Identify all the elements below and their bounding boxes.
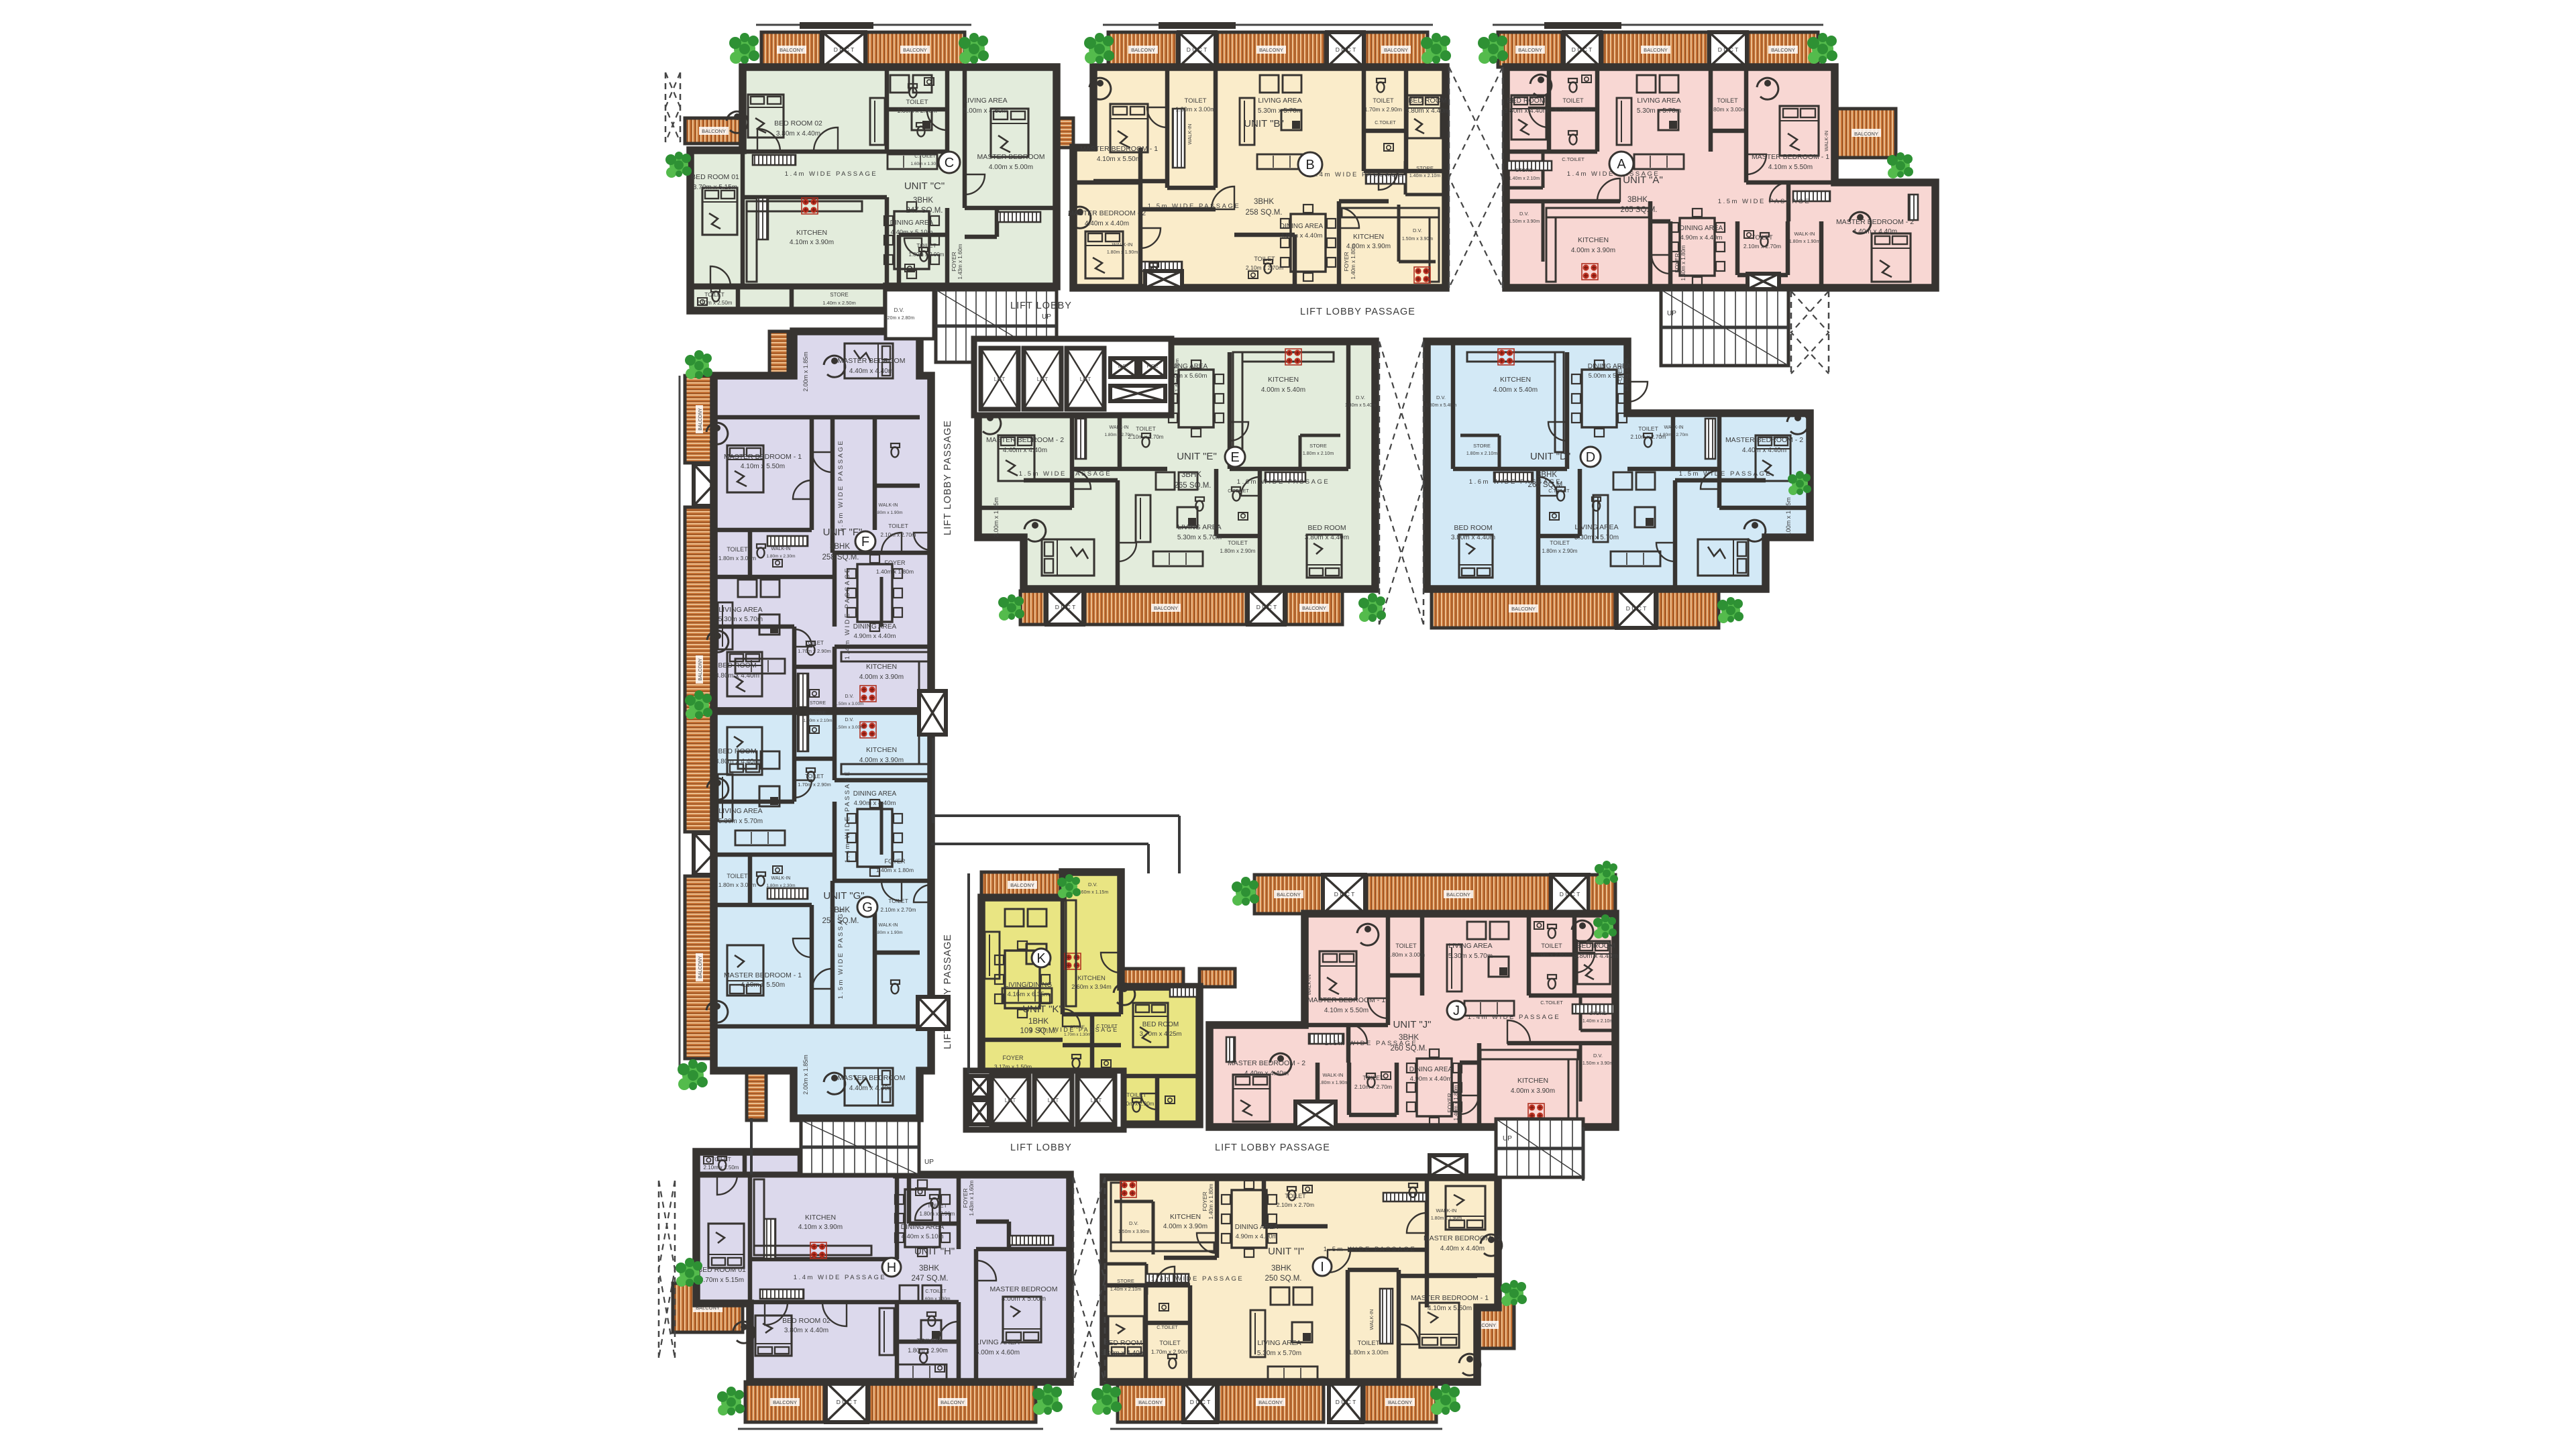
- svg-text:MASTER BEDROOM - 1: MASTER BEDROOM - 1: [724, 971, 802, 979]
- svg-text:2.10m x 2.70m: 2.10m x 2.70m: [1631, 434, 1666, 440]
- svg-text:4.40m x 5.10m: 4.40m x 5.10m: [891, 229, 933, 236]
- svg-text:MASTER BEDROOM - 2: MASTER BEDROOM - 2: [1836, 218, 1914, 226]
- svg-text:1.40m x 2.10m: 1.40m x 2.10m: [1582, 1019, 1613, 1024]
- svg-text:C.TOILET: C.TOILET: [1540, 1000, 1563, 1006]
- svg-text:5.30m x 5.70m: 5.30m x 5.70m: [718, 616, 763, 623]
- svg-text:1.40m x 1.80m: 1.40m x 1.80m: [876, 568, 914, 575]
- svg-text:TOILET: TOILET: [711, 1156, 731, 1163]
- svg-text:2.00m x 1.85m: 2.00m x 1.85m: [993, 497, 1000, 537]
- svg-text:1.40m x 1.80m: 1.40m x 1.80m: [876, 867, 914, 873]
- svg-text:3BHK: 3BHK: [1399, 1034, 1419, 1042]
- svg-text:2.10m x 2.70m: 2.10m x 2.70m: [1246, 264, 1283, 271]
- svg-text:1.5m WIDE PASSAGE: 1.5m WIDE PASSAGE: [837, 439, 845, 532]
- svg-text:UNIT "J": UNIT "J": [1393, 1019, 1431, 1030]
- svg-text:BALCONY: BALCONY: [1511, 606, 1536, 612]
- svg-text:WALK-IN: WALK-IN: [1823, 131, 1829, 152]
- svg-text:1.4m WIDE PASSAGE: 1.4m WIDE PASSAGE: [785, 170, 877, 178]
- svg-text:1.80m x 3.00m: 1.80m x 3.00m: [1387, 951, 1425, 958]
- svg-text:D U C T: D U C T: [1336, 1399, 1356, 1405]
- svg-text:1.80m x 5.40m: 1.80m x 5.40m: [1426, 403, 1456, 408]
- svg-text:TOILET: TOILET: [805, 640, 824, 646]
- svg-text:1.50m x 3.90m: 1.50m x 3.90m: [1118, 1230, 1149, 1234]
- svg-text:2.60m x 1.15m: 2.60m x 1.15m: [1077, 890, 1108, 895]
- svg-text:BALCONY: BALCONY: [702, 128, 726, 134]
- svg-text:E: E: [1230, 450, 1239, 465]
- svg-text:1.20m x 2.80m: 1.20m x 2.80m: [883, 316, 914, 321]
- svg-text:D U C T: D U C T: [1560, 891, 1580, 898]
- svg-text:BALCONY: BALCONY: [1010, 882, 1034, 888]
- svg-text:1.80m x 2.90m: 1.80m x 2.90m: [1542, 548, 1578, 554]
- svg-text:D.V.: D.V.: [1129, 1220, 1138, 1226]
- svg-text:1.80m x 5.40m: 1.80m x 5.40m: [1345, 403, 1376, 408]
- svg-text:1.70m x 2.90m: 1.70m x 2.90m: [1151, 1348, 1189, 1355]
- svg-text:STORE: STORE: [830, 292, 848, 298]
- svg-text:D U C T: D U C T: [1572, 46, 1593, 53]
- svg-text:4.90m x 4.40m: 4.90m x 4.40m: [854, 633, 896, 640]
- svg-text:FIRE: FIRE: [1146, 363, 1158, 369]
- svg-text:1.70m x 2.90m: 1.70m x 2.90m: [1364, 106, 1402, 113]
- svg-text:1.80m x 2.10m: 1.80m x 2.10m: [1303, 451, 1334, 456]
- svg-text:C.TOILET: C.TOILET: [1562, 156, 1585, 162]
- svg-text:1.70m x 2.90m: 1.70m x 2.90m: [798, 782, 831, 788]
- svg-text:1.80m x 2.90m: 1.80m x 2.90m: [920, 1211, 955, 1217]
- svg-text:FOYER: FOYER: [1617, 366, 1623, 384]
- svg-text:MASTER BEDROOM - 2: MASTER BEDROOM - 2: [1068, 209, 1146, 217]
- svg-text:BED ROOM 02: BED ROOM 02: [774, 119, 822, 127]
- svg-text:4.10m x 5.50m: 4.10m x 5.50m: [1428, 1305, 1472, 1312]
- svg-text:WALK-IN: WALK-IN: [879, 503, 898, 508]
- svg-text:FOYER: FOYER: [1002, 1055, 1024, 1061]
- svg-text:MASTER BEDROOM: MASTER BEDROOM: [977, 153, 1045, 161]
- svg-text:2.10m x 2.70m: 2.10m x 2.70m: [1128, 434, 1164, 440]
- svg-text:260 SQ.M.: 260 SQ.M.: [1391, 1044, 1428, 1053]
- svg-text:4.40m x 5.10m: 4.40m x 5.10m: [902, 1233, 944, 1240]
- svg-text:4.10m x 5.50m: 4.10m x 5.50m: [741, 981, 785, 989]
- svg-text:1.80m x 1.90m: 1.80m x 1.90m: [1107, 250, 1138, 255]
- svg-text:STORE: STORE: [1117, 1278, 1134, 1284]
- svg-text:4.00m x 5.00m: 4.00m x 5.00m: [1002, 1295, 1046, 1303]
- svg-text:1.80m x 2.30m: 1.80m x 2.30m: [767, 883, 796, 888]
- svg-text:MASTER BEDROOM - 1: MASTER BEDROOM - 1: [1307, 996, 1385, 1004]
- svg-text:D.V.: D.V.: [1436, 394, 1446, 400]
- svg-text:4.00m x 3.90m: 4.00m x 3.90m: [1163, 1223, 1207, 1230]
- svg-text:TOILET: TOILET: [906, 99, 928, 106]
- svg-text:2.00m x 1.85m: 2.00m x 1.85m: [802, 1055, 809, 1095]
- svg-text:LIFT: LIFT: [1037, 376, 1049, 382]
- svg-text:BED ROOM: BED ROOM: [1142, 1021, 1179, 1028]
- svg-text:BALCONY: BALCONY: [1277, 892, 1301, 898]
- svg-text:J: J: [1453, 1004, 1460, 1018]
- svg-text:TOILET: TOILET: [1550, 539, 1570, 546]
- svg-text:LIFT: LIFT: [1091, 1097, 1102, 1104]
- svg-text:BED ROOM: BED ROOM: [1507, 97, 1545, 105]
- svg-text:TOILET: TOILET: [727, 546, 748, 553]
- svg-text:D U C T: D U C T: [1256, 604, 1277, 610]
- svg-text:TOILET: TOILET: [888, 898, 908, 904]
- svg-text:1.4m WIDE PASSAGE: 1.4m WIDE PASSAGE: [794, 1274, 886, 1281]
- svg-text:4.90m x 4.40m: 4.90m x 4.40m: [1680, 234, 1723, 241]
- svg-text:TOILET: TOILET: [805, 773, 824, 780]
- svg-text:3.80m x 4.40m: 3.80m x 4.40m: [715, 758, 759, 765]
- svg-text:C: C: [945, 156, 954, 170]
- svg-text:1.40m x 1.80m: 1.40m x 1.80m: [1208, 1183, 1214, 1219]
- svg-text:FOYER: FOYER: [884, 559, 906, 566]
- svg-text:4.40m x 4.40m: 4.40m x 4.40m: [1244, 1070, 1289, 1077]
- svg-text:BED ROOM 02: BED ROOM 02: [782, 1317, 830, 1325]
- svg-text:UP: UP: [1667, 310, 1676, 317]
- svg-text:2.00m x 1.85m: 2.00m x 1.85m: [1785, 497, 1792, 537]
- svg-text:MASTER BEDROOM - 1: MASTER BEDROOM - 1: [724, 453, 802, 461]
- svg-text:D.V.: D.V.: [845, 718, 854, 722]
- svg-text:4.90m x 4.40m: 4.90m x 4.40m: [1281, 232, 1323, 239]
- svg-text:1.80m x 3.00m: 1.80m x 3.00m: [1348, 1349, 1389, 1356]
- svg-text:TOILET: TOILET: [916, 1338, 938, 1345]
- svg-text:4.00m x 5.40m: 4.00m x 5.40m: [1261, 386, 1305, 394]
- svg-text:DINING AREA: DINING AREA: [901, 1224, 945, 1231]
- svg-text:D.V.: D.V.: [1088, 881, 1097, 888]
- svg-text:3BHK: 3BHK: [919, 1265, 939, 1273]
- svg-text:4.00m x 3.90m: 4.00m x 3.90m: [1571, 247, 1615, 254]
- svg-text:3.70m x 5.15m: 3.70m x 5.15m: [700, 1277, 744, 1284]
- svg-text:3BHK: 3BHK: [913, 197, 933, 205]
- svg-text:260 SQ.M.: 260 SQ.M.: [1528, 481, 1565, 489]
- svg-text:DINING AREA: DINING AREA: [1280, 223, 1324, 230]
- svg-text:BED ROOM 01: BED ROOM 01: [691, 173, 739, 181]
- svg-text:MASTER BEDROOM: MASTER BEDROOM: [838, 1074, 906, 1082]
- svg-text:4.00m x 5.40m: 4.00m x 5.40m: [1493, 386, 1538, 394]
- svg-text:3.80m x 4.40m: 3.80m x 4.40m: [776, 130, 820, 138]
- svg-text:1.50m x 3.90m: 1.50m x 3.90m: [1509, 219, 1540, 224]
- svg-text:2.10m x 2.70m: 2.10m x 2.70m: [881, 532, 916, 538]
- svg-text:STORE: STORE: [1589, 1010, 1607, 1016]
- svg-text:4.10m x 5.50m: 4.10m x 5.50m: [741, 463, 785, 470]
- svg-text:TOILET: TOILET: [1752, 234, 1773, 241]
- svg-text:4.40m x 4.40m: 4.40m x 4.40m: [1853, 228, 1897, 235]
- svg-text:4.10m x 5.50m: 4.10m x 5.50m: [1324, 1007, 1368, 1014]
- svg-text:5.30m x 5.70m: 5.30m x 5.70m: [1448, 953, 1493, 960]
- svg-text:TOILET: TOILET: [704, 291, 724, 298]
- svg-text:FOYER: FOYER: [951, 252, 957, 271]
- svg-text:STORE: STORE: [1473, 443, 1491, 449]
- svg-text:DINING AREA: DINING AREA: [1680, 225, 1723, 232]
- svg-text:BALCONY: BALCONY: [903, 47, 927, 53]
- svg-text:1.40m x 1.80m: 1.40m x 1.80m: [1453, 1085, 1459, 1120]
- svg-text:F: F: [861, 535, 869, 549]
- svg-text:E.D.: E.D.: [1118, 363, 1128, 369]
- svg-text:TOILET: TOILET: [1362, 1075, 1384, 1081]
- svg-text:1.80m x 2.90m: 1.80m x 2.90m: [897, 107, 937, 114]
- svg-text:BALCONY: BALCONY: [1154, 605, 1178, 611]
- svg-text:STORE: STORE: [1416, 165, 1434, 171]
- svg-text:BED ROOM: BED ROOM: [718, 661, 756, 669]
- svg-text:D U C T: D U C T: [1336, 46, 1356, 53]
- svg-text:BALCONY: BALCONY: [1771, 47, 1795, 53]
- svg-text:BALCONY: BALCONY: [1138, 1399, 1163, 1405]
- svg-text:1.4m WIDE PASSAGE: 1.4m WIDE PASSAGE: [844, 770, 851, 863]
- svg-text:BALCONY: BALCONY: [698, 658, 703, 681]
- svg-text:1.40m x 1.80m: 1.40m x 1.80m: [1680, 245, 1686, 280]
- svg-text:WALK-IN: WALK-IN: [1794, 231, 1815, 237]
- svg-text:WALK-IN: WALK-IN: [1436, 1207, 1457, 1214]
- svg-text:BED ROOM 01: BED ROOM 01: [698, 1266, 746, 1274]
- svg-text:3BHK: 3BHK: [1537, 471, 1557, 479]
- svg-text:D U C T: D U C T: [1626, 605, 1647, 612]
- svg-text:4.00m x 3.90m: 4.00m x 3.90m: [1511, 1087, 1555, 1095]
- svg-text:3.80m x 4.40m: 3.80m x 4.40m: [1405, 107, 1450, 115]
- svg-text:4.10m x 3.90m: 4.10m x 3.90m: [790, 239, 834, 246]
- svg-text:1.4m WIDE PASSAGE: 1.4m WIDE PASSAGE: [1311, 171, 1403, 178]
- svg-text:1.50m x 3.00m: 1.50m x 3.00m: [835, 725, 864, 730]
- svg-text:G: G: [862, 900, 873, 915]
- svg-text:C.TOILET: C.TOILET: [1096, 1024, 1118, 1029]
- svg-text:3.80m x 4.40m: 3.80m x 4.40m: [1305, 534, 1349, 541]
- svg-text:STORE: STORE: [1070, 1025, 1085, 1030]
- svg-text:LIFT LOBBY PASSAGE: LIFT LOBBY PASSAGE: [1300, 307, 1415, 317]
- svg-text:LIFT: LIFT: [1080, 376, 1091, 382]
- svg-text:KITCHEN: KITCHEN: [796, 229, 827, 237]
- svg-text:1.50m x 3.90m: 1.50m x 3.90m: [1582, 1061, 1613, 1066]
- svg-text:BED ROOM: BED ROOM: [1576, 942, 1615, 950]
- svg-text:1.40m x 2.10m: 1.40m x 2.10m: [804, 718, 833, 723]
- svg-text:LIVING AREA: LIVING AREA: [718, 807, 762, 815]
- svg-text:3.80m x 4.40m: 3.80m x 4.40m: [1504, 107, 1548, 115]
- svg-text:MASTER BEDROOM - 2: MASTER BEDROOM - 2: [1424, 1234, 1501, 1242]
- svg-text:C.TOILET: C.TOILET: [914, 154, 936, 159]
- svg-text:1.80m x 2.90m: 1.80m x 2.90m: [909, 252, 945, 258]
- svg-text:1.80m x 2.30m: 1.80m x 2.30m: [767, 554, 796, 559]
- svg-text:KITCHEN: KITCHEN: [1517, 1077, 1548, 1085]
- svg-text:4.40m x 4.40m: 4.40m x 4.40m: [849, 1085, 894, 1092]
- svg-text:LIFT: LIFT: [994, 376, 1006, 382]
- svg-text:BED ROOM: BED ROOM: [718, 747, 756, 755]
- svg-text:1.6m WIDE PASSAGE: 1.6m WIDE PASSAGE: [1237, 478, 1330, 486]
- svg-text:BED ROOM: BED ROOM: [1408, 97, 1446, 105]
- svg-text:LIFT LOBBY PASSAGE: LIFT LOBBY PASSAGE: [943, 934, 953, 1049]
- svg-text:1.80m x 3.00m: 1.80m x 3.00m: [718, 555, 756, 561]
- svg-text:KITCHEN: KITCHEN: [866, 746, 897, 754]
- svg-text:UNIT "G": UNIT "G": [823, 890, 864, 902]
- svg-text:1.40m x 1.80m: 1.40m x 1.80m: [1350, 244, 1356, 279]
- svg-text:D U C T: D U C T: [837, 1399, 857, 1405]
- svg-text:UP: UP: [924, 1159, 934, 1166]
- svg-text:1.40m x 2.50m: 1.40m x 2.50m: [822, 300, 856, 306]
- svg-text:DINING AREA: DINING AREA: [1235, 1224, 1279, 1231]
- svg-text:UNIT "A": UNIT "A": [1623, 174, 1663, 186]
- svg-text:TOILET: TOILET: [1126, 1091, 1146, 1098]
- svg-text:1.43m x 1.60m: 1.43m x 1.60m: [969, 1180, 975, 1216]
- svg-text:WALK-IN: WALK-IN: [771, 547, 791, 551]
- svg-text:1.80m x 1.90m: 1.80m x 1.90m: [1789, 239, 1820, 244]
- svg-text:LIVING AREA: LIVING AREA: [975, 1338, 1019, 1346]
- svg-text:258 SQ.M.: 258 SQ.M.: [822, 553, 859, 561]
- svg-text:TOILET: TOILET: [1357, 1340, 1379, 1347]
- svg-text:4.10m x 5.50m: 4.10m x 5.50m: [1768, 164, 1813, 171]
- svg-text:STORE: STORE: [1309, 443, 1327, 449]
- svg-text:BALCONY: BALCONY: [773, 1399, 797, 1405]
- svg-text:2.10m x 2.70m: 2.10m x 2.70m: [1743, 243, 1781, 250]
- svg-text:BALCONY: BALCONY: [941, 1399, 965, 1405]
- svg-text:BALCONY: BALCONY: [1384, 47, 1408, 53]
- svg-text:MASTER BEDROOM - 1: MASTER BEDROOM - 1: [1752, 153, 1829, 161]
- svg-text:TOILET: TOILET: [1184, 97, 1206, 105]
- svg-text:1.70m x 2.90m: 1.70m x 2.90m: [1533, 951, 1570, 958]
- svg-text:WALK-IN: WALK-IN: [1187, 124, 1193, 145]
- svg-text:1.43m x 1.60m: 1.43m x 1.60m: [957, 244, 963, 279]
- svg-text:3BHK: 3BHK: [1627, 196, 1648, 204]
- svg-text:4.10m x 3.90m: 4.10m x 3.90m: [798, 1224, 843, 1231]
- svg-text:1.40m x 2.10m: 1.40m x 2.10m: [1409, 174, 1440, 178]
- svg-text:FOYER: FOYER: [1201, 1191, 1208, 1211]
- svg-text:LIVING AREA: LIVING AREA: [718, 606, 762, 614]
- svg-text:BALCONY: BALCONY: [1131, 47, 1155, 53]
- svg-text:UNIT "D": UNIT "D": [1530, 451, 1570, 462]
- svg-text:TOILET: TOILET: [1373, 97, 1394, 104]
- svg-text:4.40m x 4.40m: 4.40m x 4.40m: [1003, 447, 1047, 454]
- svg-text:FOYER: FOYER: [1343, 252, 1350, 271]
- svg-text:H: H: [887, 1260, 896, 1275]
- svg-text:DINING AREA: DINING AREA: [1409, 1066, 1453, 1073]
- svg-text:1.80m x 3.00m: 1.80m x 3.00m: [718, 881, 756, 888]
- svg-text:1.40m x 2.10m: 1.40m x 2.10m: [1509, 176, 1540, 181]
- svg-text:1.40m x 1.80m: 1.40m x 1.80m: [1623, 358, 1629, 392]
- svg-text:KITCHEN: KITCHEN: [805, 1214, 836, 1222]
- svg-text:1.40m x 1.80m: 1.40m x 1.80m: [1174, 358, 1180, 392]
- svg-text:1.50m x 3.90m: 1.50m x 3.90m: [1402, 237, 1433, 241]
- svg-text:KITCHEN: KITCHEN: [1268, 376, 1299, 384]
- svg-text:3BHK: 3BHK: [1254, 198, 1274, 206]
- svg-text:265 SQ.M.: 265 SQ.M.: [1621, 206, 1658, 214]
- svg-text:1BHK: 1BHK: [1028, 1018, 1049, 1026]
- svg-text:FOYER: FOYER: [962, 1188, 969, 1207]
- svg-text:5.00m x 4.60m: 5.00m x 4.60m: [963, 107, 1008, 115]
- svg-text:3BHK: 3BHK: [830, 543, 850, 551]
- svg-text:3.70m x 5.15m: 3.70m x 5.15m: [693, 184, 737, 191]
- svg-text:1.80m x 3.00m: 1.80m x 3.00m: [1175, 106, 1216, 113]
- svg-text:MASTER BEDROOM - 1: MASTER BEDROOM - 1: [1411, 1294, 1489, 1302]
- svg-text:TOILET: TOILET: [927, 1202, 947, 1209]
- svg-text:TOILET: TOILET: [1395, 943, 1417, 949]
- svg-text:109 SQ.M.: 109 SQ.M.: [1020, 1027, 1057, 1035]
- svg-text:5.30m x 5.70m: 5.30m x 5.70m: [1637, 107, 1681, 115]
- svg-text:D U C T: D U C T: [1190, 1399, 1211, 1405]
- svg-text:1.5m WIDE PASSAGE: 1.5m WIDE PASSAGE: [1679, 470, 1772, 478]
- svg-text:WALK-IN: WALK-IN: [1664, 425, 1684, 430]
- svg-text:TOILET: TOILET: [1254, 256, 1275, 262]
- svg-text:LIFT LOBBY PASSAGE: LIFT LOBBY PASSAGE: [943, 420, 953, 535]
- svg-text:2.00m x 1.85m: 2.00m x 1.85m: [802, 352, 809, 392]
- svg-text:1.50m x 3.00m: 1.50m x 3.00m: [835, 702, 864, 706]
- svg-text:265 SQ.M.: 265 SQ.M.: [1175, 482, 1212, 490]
- svg-text:1.80m x 2.10m: 1.80m x 2.10m: [1466, 451, 1497, 456]
- svg-text:WALK-IN: WALK-IN: [1110, 425, 1129, 430]
- svg-text:B: B: [1305, 158, 1314, 172]
- svg-text:STORE: STORE: [810, 701, 826, 706]
- svg-text:4.00m x 3.90m: 4.00m x 3.90m: [859, 674, 904, 681]
- svg-text:BALCONY: BALCONY: [1258, 1399, 1283, 1405]
- svg-text:247 SQ.M.: 247 SQ.M.: [906, 207, 943, 215]
- svg-text:4.40m x 4.40m: 4.40m x 4.40m: [1085, 220, 1129, 227]
- svg-text:BALCONY: BALCONY: [780, 47, 804, 53]
- svg-text:BALCONY: BALCONY: [1388, 1399, 1412, 1405]
- svg-text:3.80m x 4.40m: 3.80m x 4.40m: [1451, 534, 1495, 541]
- svg-text:MASTER BEDROOM: MASTER BEDROOM: [838, 357, 906, 365]
- svg-text:BALCONY: BALCONY: [1644, 47, 1668, 53]
- svg-text:UNIT "H": UNIT "H": [914, 1246, 955, 1257]
- svg-text:4.16m x 6.35m: 4.16m x 6.35m: [1008, 991, 1050, 998]
- svg-text:247 SQ.M.: 247 SQ.M.: [912, 1275, 949, 1283]
- svg-text:MASTER BEDROOM - 2: MASTER BEDROOM - 2: [1228, 1059, 1305, 1067]
- svg-text:KITCHEN: KITCHEN: [1500, 376, 1531, 384]
- svg-text:3.80m x 4.40m: 3.80m x 4.40m: [1101, 1350, 1145, 1357]
- svg-text:1.60m x 1.30m: 1.60m x 1.30m: [922, 1297, 951, 1301]
- svg-text:3BHK: 3BHK: [830, 906, 850, 914]
- svg-text:1.70m x 2.90m: 1.70m x 2.90m: [798, 648, 831, 654]
- svg-text:1.60m x 1.30m: 1.60m x 1.30m: [911, 162, 940, 166]
- svg-text:D.V.: D.V.: [845, 694, 854, 699]
- svg-text:TOILET: TOILET: [888, 523, 908, 529]
- svg-text:LIVING AREA: LIVING AREA: [1258, 97, 1301, 105]
- svg-text:5.00m x 4.60m: 5.00m x 4.60m: [975, 1349, 1020, 1356]
- svg-text:1.80m x 2.90m: 1.80m x 2.90m: [908, 1347, 948, 1354]
- svg-text:TOILET: TOILET: [727, 873, 748, 879]
- svg-text:UNIT "I": UNIT "I": [1268, 1246, 1304, 1257]
- svg-text:KITCHEN: KITCHEN: [1170, 1213, 1201, 1221]
- svg-text:D.V.: D.V.: [1519, 211, 1529, 217]
- svg-text:1.4m WIDE PASSAGE: 1.4m WIDE PASSAGE: [1151, 1275, 1244, 1283]
- svg-text:1.40m x 2.10m: 1.40m x 2.10m: [1110, 1287, 1141, 1292]
- svg-text:2.60m x 3.94m: 2.60m x 3.94m: [1071, 983, 1112, 990]
- svg-text:WALK-IN: WALK-IN: [1368, 1309, 1375, 1330]
- svg-text:TOILET: TOILET: [1285, 1193, 1306, 1199]
- svg-text:2.10m x 2.70m: 2.10m x 2.70m: [881, 907, 916, 913]
- svg-text:DINING AREA: DINING AREA: [853, 623, 897, 631]
- svg-text:FOYER: FOYER: [1674, 253, 1680, 272]
- svg-text:D.V.: D.V.: [894, 307, 904, 313]
- svg-text:BALCONY: BALCONY: [1302, 605, 1326, 611]
- svg-text:1.4m WIDE PASSAGE: 1.4m WIDE PASSAGE: [844, 567, 851, 659]
- svg-text:2.10m x 2.70m: 2.10m x 2.70m: [1354, 1083, 1392, 1090]
- svg-text:1.80m x 1.90m: 1.80m x 1.90m: [1431, 1216, 1462, 1221]
- svg-text:LIVING AREA: LIVING AREA: [963, 97, 1007, 105]
- svg-text:LIFT: LIFT: [1048, 1097, 1059, 1104]
- svg-text:WALK-IN: WALK-IN: [1112, 241, 1133, 248]
- svg-text:1.5m WIDE PASSAGE: 1.5m WIDE PASSAGE: [1324, 1246, 1416, 1253]
- svg-text:LIFT LOBBY: LIFT LOBBY: [1010, 301, 1072, 311]
- svg-text:5.30m x 5.70m: 5.30m x 5.70m: [1574, 534, 1619, 541]
- svg-text:FOYER: FOYER: [1446, 1093, 1453, 1112]
- svg-text:5.30m x 5.70m: 5.30m x 5.70m: [1177, 534, 1222, 541]
- svg-text:D U C T: D U C T: [1055, 604, 1076, 610]
- svg-text:258 SQ.M.: 258 SQ.M.: [822, 917, 859, 925]
- svg-text:MASTER BEDROOM - 1: MASTER BEDROOM - 1: [1080, 145, 1158, 153]
- svg-text:STORE: STORE: [1515, 167, 1533, 173]
- svg-text:STORE: STORE: [810, 711, 826, 716]
- svg-text:A: A: [1617, 157, 1626, 172]
- svg-text:LIVING AREA: LIVING AREA: [1448, 942, 1492, 950]
- svg-text:WALK-IN: WALK-IN: [771, 876, 791, 881]
- svg-text:TOILET: TOILET: [1717, 97, 1738, 104]
- svg-text:BALCONY: BALCONY: [698, 956, 703, 979]
- svg-text:LIVING AREA: LIVING AREA: [1574, 523, 1618, 531]
- svg-text:UNIT "K": UNIT "K": [1022, 1004, 1063, 1015]
- svg-text:5.30m x 5.70m: 5.30m x 5.70m: [718, 818, 763, 825]
- svg-text:I: I: [1320, 1260, 1324, 1275]
- svg-text:KITCHEN: KITCHEN: [1077, 975, 1106, 982]
- svg-text:1.80m x 2.90m: 1.80m x 2.90m: [1220, 548, 1256, 554]
- svg-text:TOILET: TOILET: [1562, 97, 1584, 104]
- svg-text:1.5m WIDE PASSAGE: 1.5m WIDE PASSAGE: [1148, 203, 1240, 210]
- svg-text:BALCONY: BALCONY: [1259, 47, 1283, 53]
